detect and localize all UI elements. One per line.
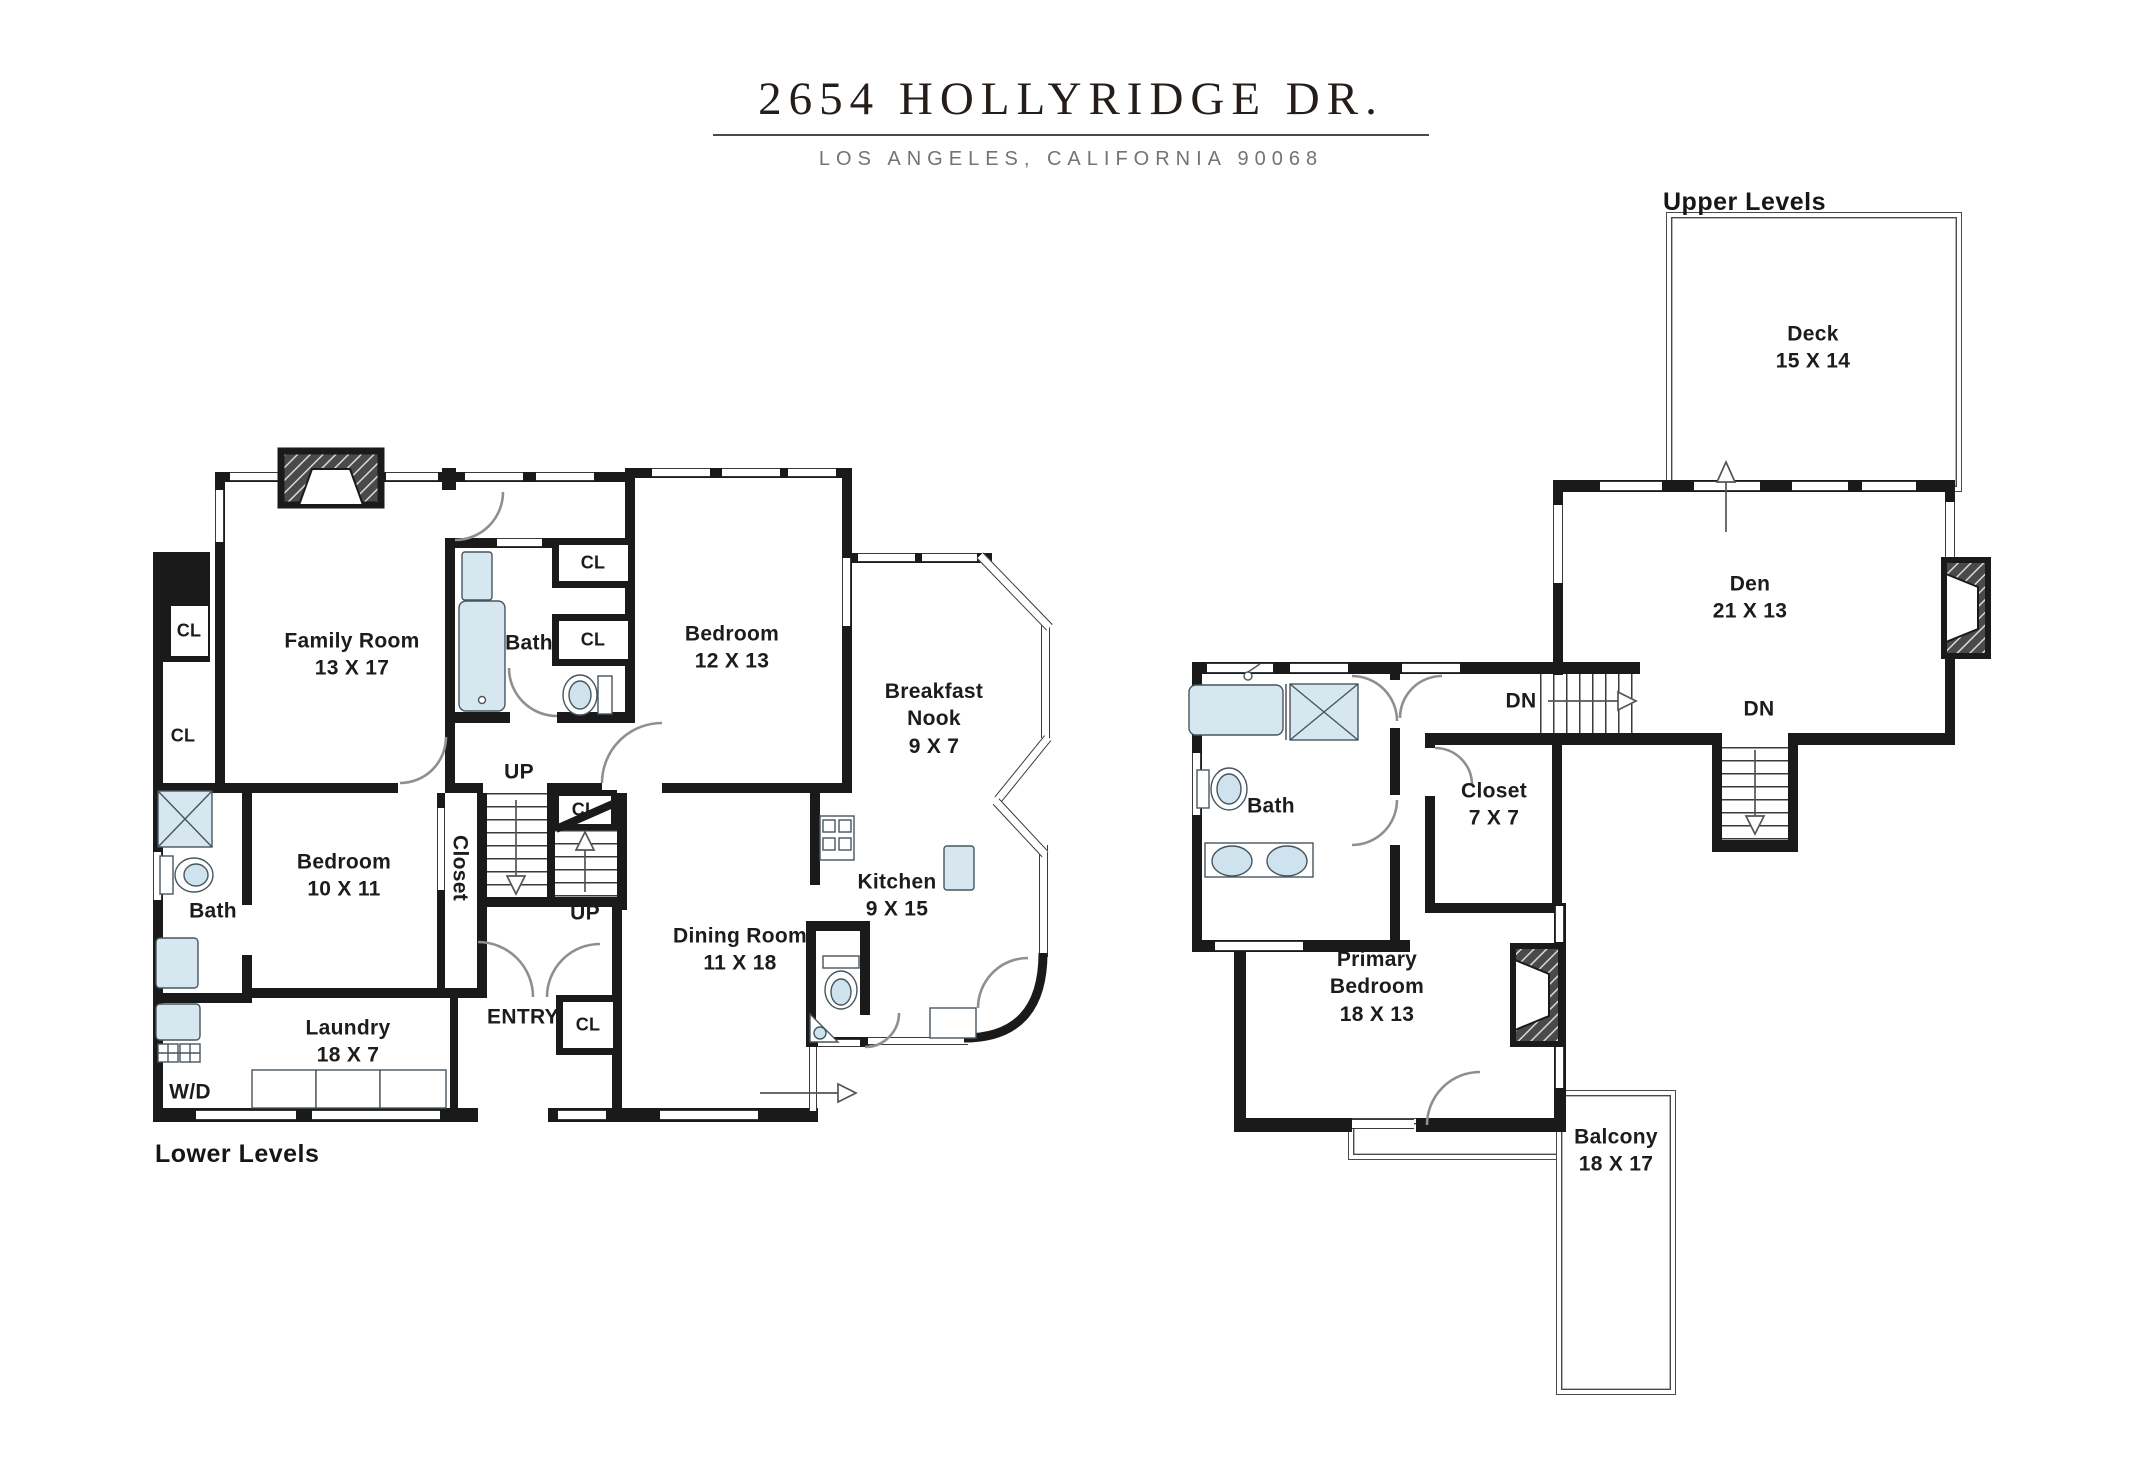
window xyxy=(1215,941,1303,951)
room-label-family-room: Family Room 13 X 17 xyxy=(284,628,419,683)
wall xyxy=(153,660,163,793)
bay-window xyxy=(977,552,1053,630)
hookup-icon xyxy=(180,1044,200,1062)
bathtub-icon xyxy=(1189,685,1283,735)
sink-icon xyxy=(1267,846,1307,876)
arrow-head-right xyxy=(838,1084,856,1102)
window xyxy=(1792,481,1848,491)
room-label-closet-7x7: Closet 7 X 7 xyxy=(1461,778,1527,833)
window xyxy=(818,1039,860,1047)
shower-x xyxy=(1290,684,1358,740)
window xyxy=(652,468,710,477)
window xyxy=(1862,481,1916,491)
room-label-closet-vertical: Closet xyxy=(446,835,473,901)
floor-plan-page: 2654 HOLLYRIDGE DR. LOS ANGELES, CALIFOR… xyxy=(0,0,2152,1457)
cabinet-icon xyxy=(380,1070,446,1108)
window xyxy=(1553,505,1563,583)
burner-icon xyxy=(839,820,851,832)
door-arc xyxy=(978,958,1028,1008)
closet-label: CL xyxy=(581,628,606,651)
window xyxy=(1402,663,1460,673)
toilet-bowl-icon xyxy=(1217,774,1241,804)
header: 2654 HOLLYRIDGE DR. LOS ANGELES, CALIFOR… xyxy=(713,72,1429,171)
wall xyxy=(810,793,820,885)
room-label-entry: ENTRY xyxy=(487,1003,559,1030)
caption-lower-levels: Lower Levels xyxy=(155,1140,319,1169)
room-label-breakfast-nook: Breakfast Nook 9 X 7 xyxy=(885,678,983,760)
cabinet-icon xyxy=(252,1070,316,1108)
room-label-balcony: Balcony 18 X 17 xyxy=(1574,1124,1658,1179)
wall xyxy=(1390,845,1400,952)
door-arc xyxy=(455,492,503,540)
wall xyxy=(557,712,635,723)
window xyxy=(868,1037,968,1045)
wall xyxy=(455,783,483,793)
wall xyxy=(1425,903,1562,913)
window xyxy=(788,468,836,477)
wall xyxy=(1425,733,1712,745)
door-arc xyxy=(602,723,662,783)
toilet-bowl-icon xyxy=(831,979,851,1005)
room-label-bath-upper: Bath xyxy=(505,629,553,656)
room-label-dining-room: Dining Room 11 X 18 xyxy=(673,923,807,978)
window xyxy=(722,468,780,477)
window xyxy=(437,808,445,890)
window xyxy=(497,538,542,547)
room-label-laundry: Laundry 18 X 7 xyxy=(306,1015,391,1070)
counter-icon xyxy=(930,1008,976,1038)
wall xyxy=(1712,840,1798,852)
window xyxy=(1192,753,1201,815)
wall xyxy=(450,997,458,1108)
staircase-up xyxy=(555,830,617,898)
room-label-bedroom-12x13: Bedroom 12 X 13 xyxy=(685,621,779,676)
staircase-up xyxy=(487,793,547,899)
stair-arrows xyxy=(507,462,1764,1102)
room-label-deck: Deck 15 X 14 xyxy=(1776,321,1851,376)
closet-label: CL xyxy=(177,619,202,642)
wall xyxy=(1416,1118,1480,1132)
window xyxy=(1600,481,1662,491)
door-arc xyxy=(1352,800,1397,845)
staircase-down xyxy=(1722,747,1788,841)
window xyxy=(312,1110,440,1120)
wall xyxy=(445,712,510,723)
kitchen-sink-icon xyxy=(944,846,974,890)
window xyxy=(1555,906,1564,942)
closet-label: CL xyxy=(572,798,597,821)
wall xyxy=(242,793,252,905)
shower-icon xyxy=(1290,684,1358,740)
window xyxy=(386,472,438,481)
door-arc xyxy=(1352,676,1397,721)
window xyxy=(922,553,977,562)
sink-icon xyxy=(1212,846,1252,876)
window xyxy=(1945,502,1955,558)
door-arc xyxy=(1400,676,1442,718)
toilet-tank-icon xyxy=(598,676,612,714)
window xyxy=(465,472,523,481)
burner-icon xyxy=(839,838,851,850)
window xyxy=(1290,663,1348,673)
room-label-bath-lower: Bath xyxy=(189,897,237,924)
window xyxy=(1039,845,1048,957)
sink-icon xyxy=(462,552,492,600)
shower-icon xyxy=(158,791,212,847)
wall xyxy=(153,993,252,1003)
wall xyxy=(483,897,627,907)
door-arc xyxy=(400,737,446,783)
door-arc xyxy=(509,668,557,716)
bathtub-icon xyxy=(459,601,505,711)
wall xyxy=(153,783,163,1122)
bay-window xyxy=(995,735,1052,802)
toilet-icon xyxy=(175,858,213,892)
stove-icon xyxy=(820,816,854,860)
stair-label-up: UP xyxy=(504,758,534,785)
toilet-icon xyxy=(825,971,857,1009)
curved-wall xyxy=(964,953,1043,1038)
window xyxy=(1041,624,1050,738)
wall xyxy=(1425,796,1435,913)
window xyxy=(558,1110,606,1120)
window xyxy=(1555,1046,1564,1088)
shower-x xyxy=(158,791,212,847)
wall xyxy=(1234,940,1246,1132)
wall xyxy=(1390,662,1400,680)
caption-upper-levels: Upper Levels xyxy=(1663,188,1826,217)
closet-label: CL xyxy=(171,724,196,747)
window xyxy=(660,1110,758,1120)
page-title: 2654 HOLLYRIDGE DR. xyxy=(713,72,1429,126)
stair-label-dn: DN xyxy=(1744,695,1775,722)
cabinet-icon xyxy=(316,1070,380,1108)
toilet-tank-icon xyxy=(823,956,859,968)
wall xyxy=(442,468,456,490)
toilet-bowl-icon xyxy=(569,681,591,709)
wall xyxy=(477,793,487,998)
fixtures-upper xyxy=(1189,664,1358,877)
toilet-icon xyxy=(1211,768,1247,810)
wall xyxy=(1390,728,1400,795)
window xyxy=(1352,1119,1414,1129)
bay-window xyxy=(993,798,1049,857)
wall xyxy=(1425,733,1435,748)
wall xyxy=(445,538,455,793)
wall xyxy=(662,783,852,793)
shower-x xyxy=(158,791,212,847)
window xyxy=(1694,481,1760,491)
shower-x xyxy=(1290,684,1358,740)
door-arc xyxy=(547,944,600,997)
title-underline xyxy=(713,134,1429,136)
window xyxy=(1207,663,1273,673)
room-label-kitchen: Kitchen 9 X 15 xyxy=(857,869,936,924)
toilet-icon xyxy=(563,675,597,715)
stair-label-up: UP xyxy=(570,899,600,926)
burner-icon xyxy=(823,838,835,850)
wall xyxy=(625,468,635,723)
room-label-den: Den 21 X 13 xyxy=(1713,571,1788,626)
burner-icon xyxy=(823,820,835,832)
room-label-bedroom-10x11: Bedroom 10 X 11 xyxy=(297,849,391,904)
window xyxy=(809,1047,817,1111)
page-subtitle: LOS ANGELES, CALIFORNIA 90068 xyxy=(713,148,1429,171)
room-label-bath-upper-plan: Bath xyxy=(1247,792,1295,819)
wall xyxy=(617,793,627,910)
stair-label-dn: DN xyxy=(1506,687,1537,714)
wall xyxy=(1798,733,1955,745)
wall xyxy=(860,921,870,1015)
wall xyxy=(1712,733,1722,850)
room-label-washer-dryer: W/D xyxy=(169,1078,211,1105)
closet-label: CL xyxy=(581,551,606,574)
window xyxy=(196,1110,296,1120)
wall xyxy=(1234,1118,1352,1132)
window xyxy=(230,472,280,481)
window xyxy=(153,852,162,900)
closet-label: CL xyxy=(576,1013,601,1036)
window xyxy=(215,490,224,542)
tub-drain-icon xyxy=(479,697,486,704)
staircase-down xyxy=(1540,674,1636,733)
wall xyxy=(153,783,398,793)
window xyxy=(842,558,851,626)
window xyxy=(858,553,915,562)
window xyxy=(536,472,594,481)
vanity-counter-icon xyxy=(1205,843,1313,877)
wall xyxy=(1788,733,1798,850)
toilet-bowl-icon xyxy=(184,864,208,886)
wall xyxy=(842,468,852,793)
wall xyxy=(1552,733,1562,913)
room-label-primary-bedroom: Primary Bedroom 18 X 13 xyxy=(1330,946,1424,1028)
wall xyxy=(806,921,816,1047)
